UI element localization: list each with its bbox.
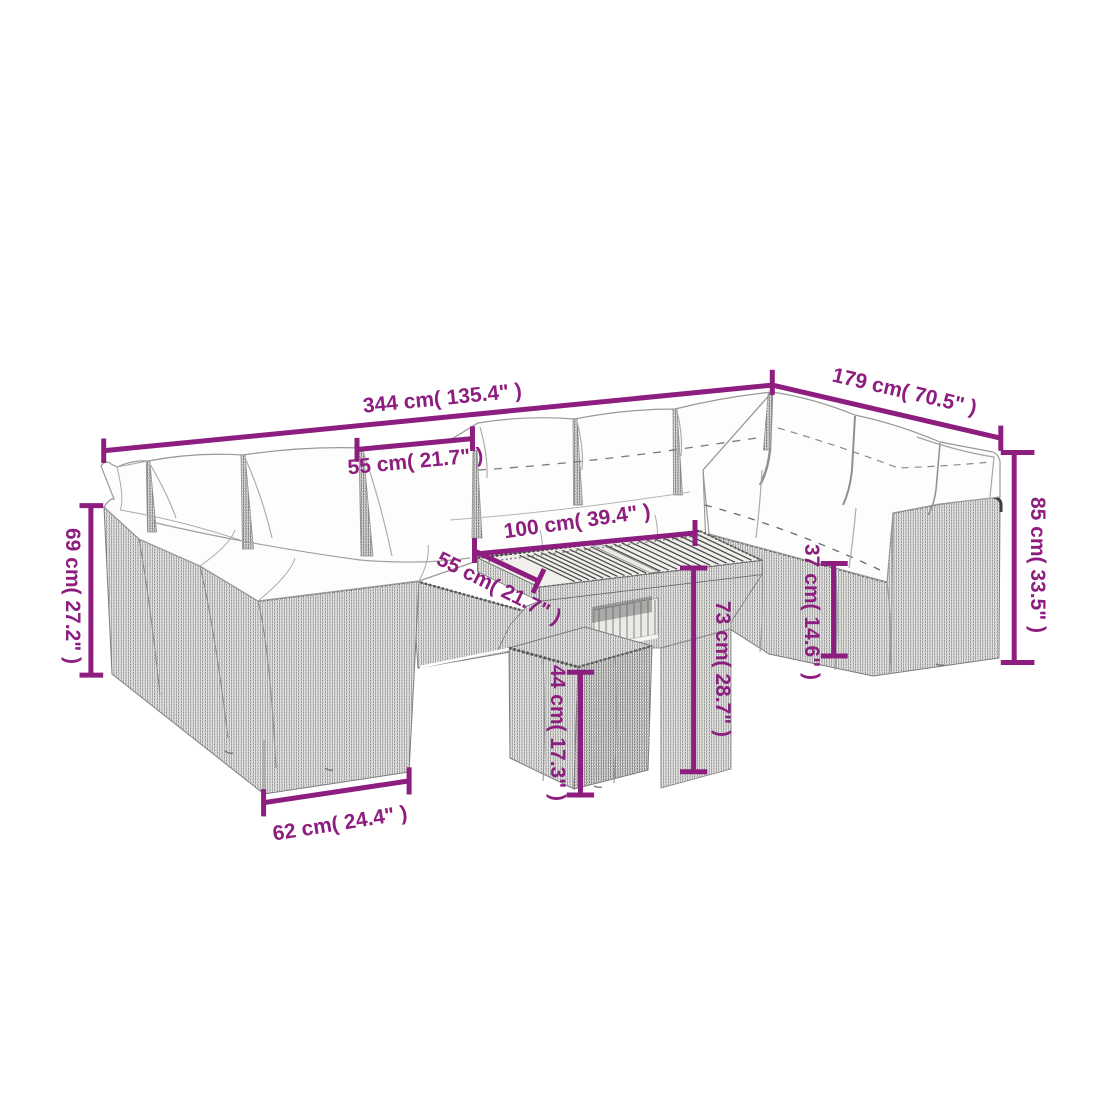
svg-text:69 cm( 27.2" ): 69 cm( 27.2" ) (61, 528, 84, 664)
svg-text:37 cm( 14.6" ): 37 cm( 14.6" ) (800, 544, 823, 680)
svg-text:44 cm( 17.3" ): 44 cm( 17.3" ) (546, 665, 569, 801)
svg-text:73 cm( 28.7" ): 73 cm( 28.7" ) (711, 601, 734, 737)
svg-text:85 cm( 33.5" ): 85 cm( 33.5" ) (1026, 497, 1049, 633)
